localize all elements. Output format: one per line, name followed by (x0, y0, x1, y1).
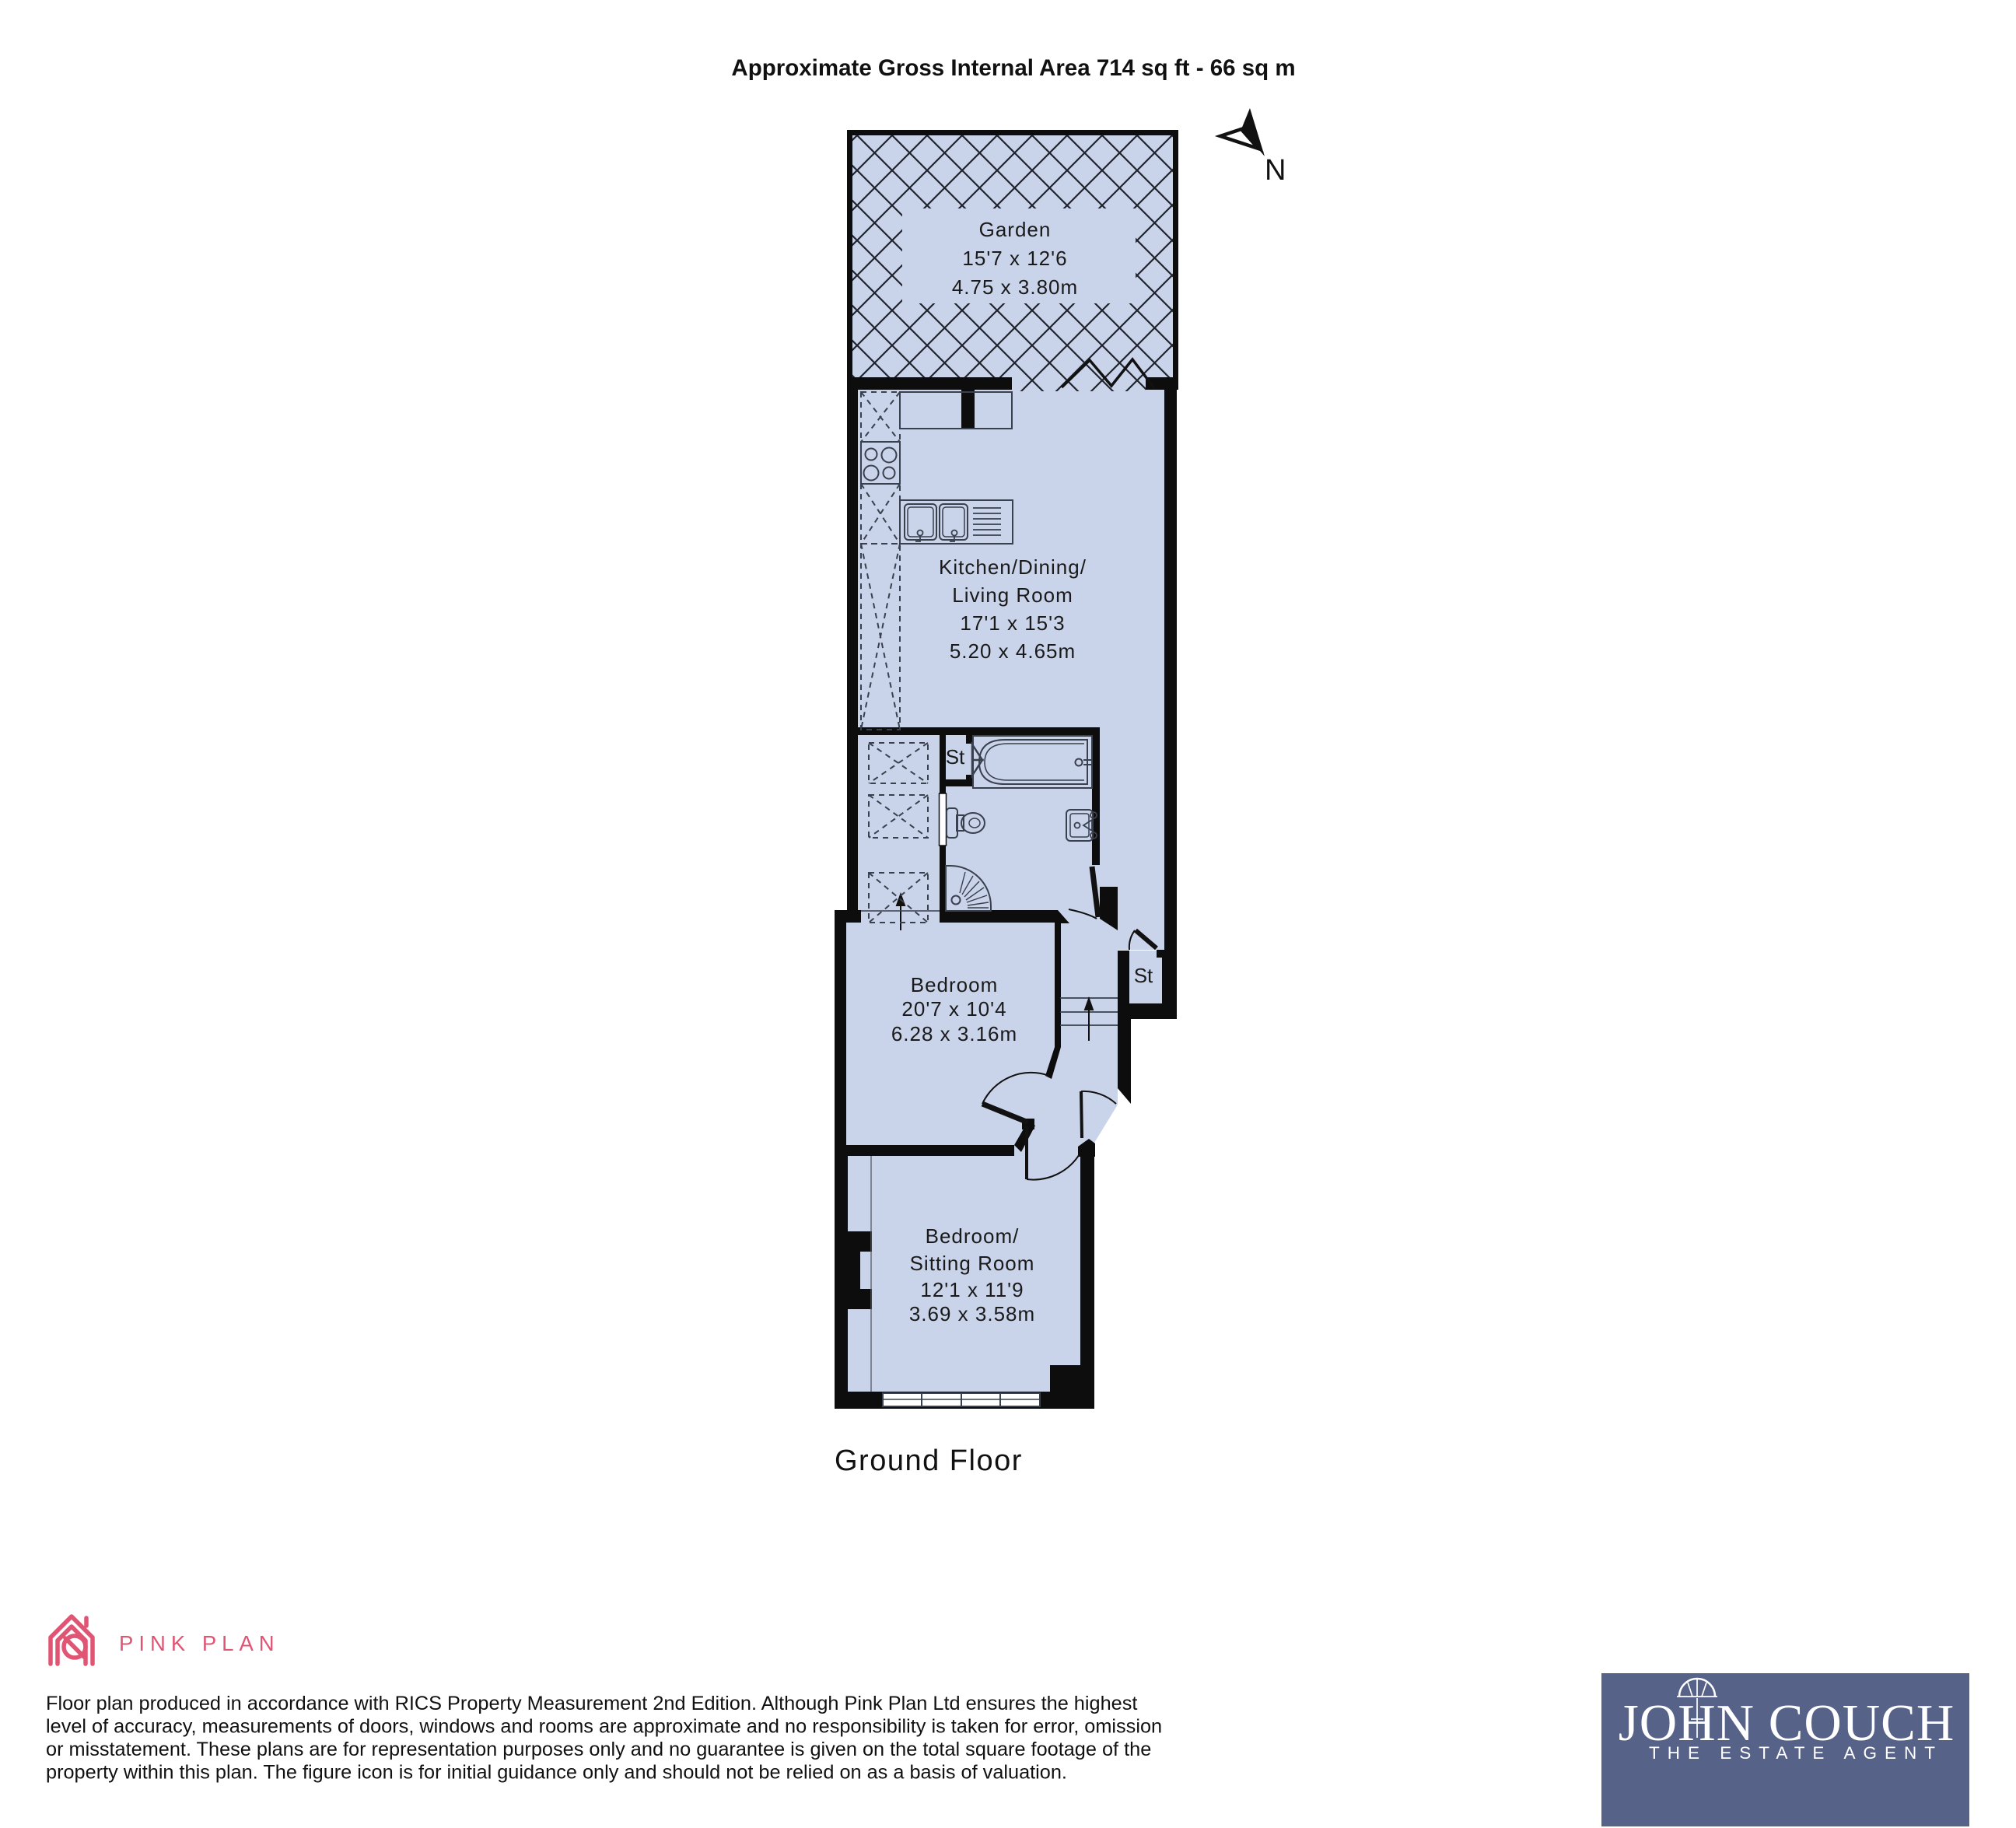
svg-text:6.28 x 3.16m: 6.28 x 3.16m (891, 1022, 1017, 1045)
svg-text:4.75 x 3.80m: 4.75 x 3.80m (952, 275, 1078, 299)
svg-text:3.69 x 3.58m: 3.69 x 3.58m (909, 1302, 1035, 1325)
svg-text:15'7 x 12'6: 15'7 x 12'6 (962, 247, 1067, 270)
svg-text:Approximate Gross Internal Are: Approximate Gross Internal Area 714 sq f… (731, 55, 1295, 81)
svg-text:Living Room: Living Room (952, 583, 1073, 607)
svg-text:or misstatement. These plans a: or misstatement. These plans are for rep… (46, 1739, 1151, 1760)
svg-text:property within this plan. The: property within this plan. The figure ic… (46, 1762, 1067, 1784)
svg-text:12'1 x 11'9: 12'1 x 11'9 (920, 1278, 1024, 1301)
svg-text:Floor plan produced in accorda: Floor plan produced in accordance with R… (46, 1693, 1137, 1714)
svg-text:St: St (946, 745, 965, 769)
svg-text:20'7 x 10'4: 20'7 x 10'4 (901, 997, 1006, 1021)
svg-text:Garden: Garden (979, 218, 1052, 241)
svg-text:level of accuracy, measurement: level of accuracy, measurements of doors… (46, 1716, 1162, 1738)
svg-text:17'1 x 15'3: 17'1 x 15'3 (960, 611, 1065, 635)
svg-text:5.20 x 4.65m: 5.20 x 4.65m (950, 639, 1076, 663)
svg-text:Bedroom/: Bedroom/ (926, 1224, 1020, 1248)
svg-text:PINK PLAN: PINK PLAN (119, 1631, 280, 1655)
svg-text:N: N (1265, 154, 1286, 187)
svg-text:Kitchen/Dining/: Kitchen/Dining/ (939, 555, 1087, 579)
svg-text:St: St (1134, 964, 1153, 987)
svg-text:Ground Floor: Ground Floor (835, 1445, 1023, 1477)
svg-text:Bedroom: Bedroom (911, 973, 999, 996)
svg-text:THE ESTATE AGENT: THE ESTATE AGENT (1649, 1743, 1943, 1763)
svg-text:Sitting Room: Sitting Room (910, 1252, 1035, 1275)
